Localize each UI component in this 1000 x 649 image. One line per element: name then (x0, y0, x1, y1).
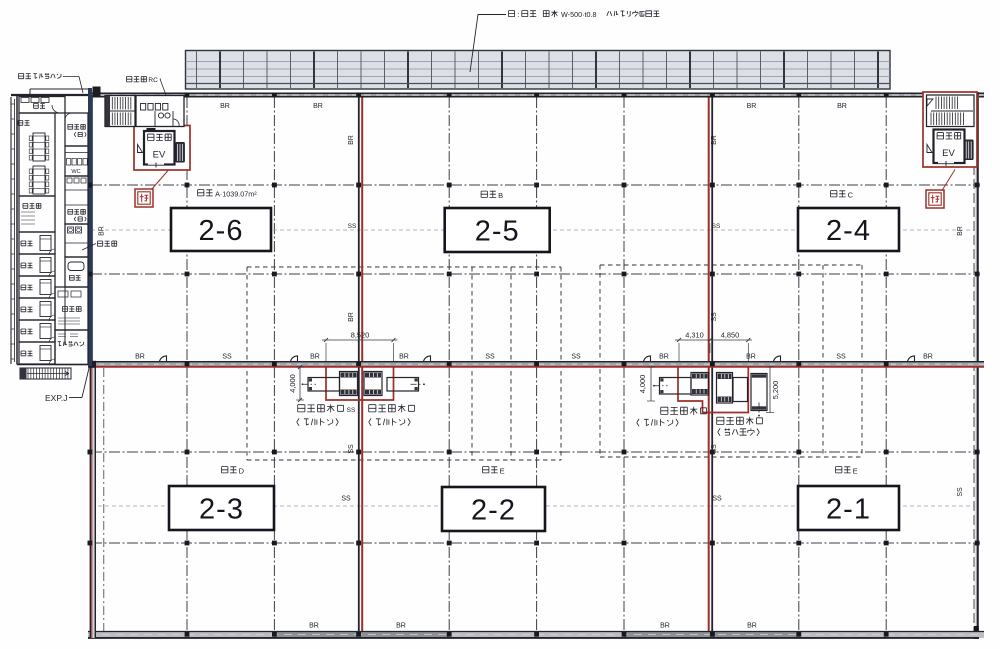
svg-text:BR: BR (660, 623, 670, 630)
svg-text:BR: BR (711, 135, 718, 145)
svg-text:4,850: 4,850 (721, 331, 740, 340)
svg-text:B: B (498, 191, 503, 200)
svg-text:4,000: 4,000 (288, 374, 297, 393)
svg-text:D: D (239, 466, 245, 475)
svg-text:BR: BR (396, 623, 406, 630)
svg-text:2-3: 2-3 (199, 494, 244, 526)
svg-text:BR: BR (399, 354, 409, 361)
svg-text:SS: SS (711, 444, 718, 454)
svg-text:SS: SS (712, 223, 721, 230)
svg-text:BR: BR (923, 354, 933, 361)
svg-text:SS: SS (571, 354, 581, 361)
svg-text:SS: SS (485, 354, 495, 361)
svg-text:BR: BR (135, 354, 145, 361)
svg-text:EV: EV (942, 148, 955, 159)
svg-text:SS: SS (711, 312, 718, 322)
svg-text:2-6: 2-6 (199, 215, 244, 247)
svg-text:BR: BR (348, 312, 355, 322)
svg-text:C: C (848, 190, 854, 199)
svg-text:BR: BR (348, 135, 355, 145)
svg-text:BR: BR (99, 226, 106, 236)
svg-text:BR: BR (747, 103, 757, 110)
svg-text:BR: BR (313, 103, 323, 110)
svg-text:5,200: 5,200 (771, 381, 780, 400)
svg-text:2-2: 2-2 (471, 495, 516, 527)
svg-text:SS: SS (341, 496, 351, 503)
svg-text:SS: SS (836, 354, 846, 361)
svg-text:SS: SS (347, 407, 356, 414)
svg-text:2-1: 2-1 (826, 494, 871, 526)
svg-text:SS: SS (348, 223, 357, 230)
svg-text:W-500·t0.8: W-500·t0.8 (561, 10, 596, 19)
svg-text:BR: BR (310, 354, 320, 361)
svg-text:WC: WC (71, 169, 80, 175)
svg-text::: : (517, 10, 519, 19)
svg-text:4,000: 4,000 (638, 375, 647, 394)
svg-text:BR: BR (220, 103, 230, 110)
svg-text:EXP.J: EXP.J (45, 393, 68, 403)
svg-text:E: E (500, 466, 505, 475)
svg-text:BR: BR (309, 623, 319, 630)
svg-text:BR: BR (747, 623, 757, 630)
svg-text:SS: SS (957, 487, 964, 497)
svg-text:EV: EV (153, 150, 166, 161)
svg-text:4,310: 4,310 (685, 331, 704, 340)
svg-text:SS: SS (712, 496, 722, 503)
svg-text:BR: BR (746, 354, 756, 361)
svg-text:SS: SS (222, 354, 232, 361)
svg-text:E: E (853, 466, 858, 475)
svg-text:BR: BR (659, 354, 669, 361)
svg-text:2-4: 2-4 (826, 215, 871, 247)
svg-text:SS: SS (348, 444, 355, 454)
svg-text:BR: BR (957, 226, 964, 236)
svg-text:RC: RC (148, 77, 158, 84)
svg-text:BR: BR (837, 103, 847, 110)
svg-text:8,520: 8,520 (351, 331, 370, 340)
svg-text:2-5: 2-5 (475, 216, 520, 248)
svg-text:A·1039.07m²: A·1039.07m² (215, 190, 257, 199)
